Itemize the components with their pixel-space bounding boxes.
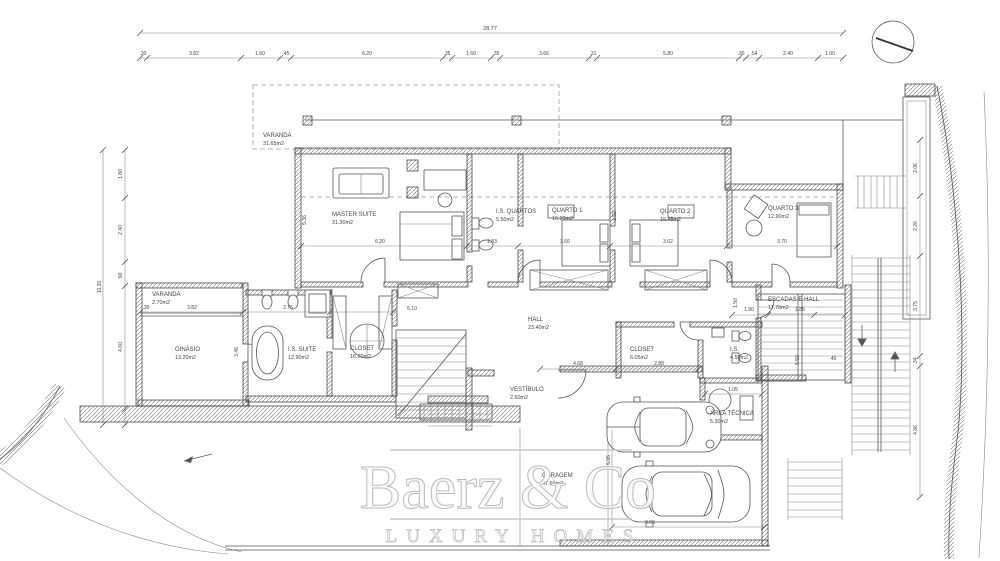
svg-text:4.68: 4.68 <box>573 361 583 367</box>
svg-text:2.70m2: 2.70m2 <box>152 300 170 306</box>
compass-needle <box>876 38 913 51</box>
room-escadas-hall: ESCADAS E HALL <box>768 297 820 303</box>
svg-text:2.88: 2.88 <box>654 361 664 367</box>
svg-text:12.90m2: 12.90m2 <box>768 214 789 220</box>
room-varanda-top: VARANDA <box>263 133 292 139</box>
svg-text:.34: .34 <box>913 357 919 364</box>
room-quarto-1: QUARTO 1 <box>552 208 583 214</box>
svg-text:3.66: 3.66 <box>539 51 549 57</box>
svg-text:.35: .35 <box>444 51 451 57</box>
svg-text:11.70m2: 11.70m2 <box>768 305 789 311</box>
car-sports <box>607 397 721 457</box>
svg-text:1.50: 1.50 <box>733 298 739 308</box>
dimension-chain-left: 10.30 1.80 2.40 .90 4.60 <box>97 147 128 428</box>
is-suite-fixtures <box>252 290 330 380</box>
svg-text:2.40: 2.40 <box>118 225 124 235</box>
floor-plan-drawing: 28.77 .30 3.82 1.60 .45 6.20 .35 1.60 .3… <box>0 0 1000 561</box>
room-ginasio: GINÁSIO <box>175 346 200 353</box>
dim-overall-top: 28.77 <box>483 26 497 32</box>
svg-text:1.05: 1.05 <box>728 387 738 393</box>
room-hall: HALL <box>528 317 544 323</box>
svg-text:5.10: 5.10 <box>407 306 417 312</box>
floor-plan-sheet: 28.77 .30 3.82 1.60 .45 6.20 .35 1.60 .3… <box>0 0 1000 561</box>
svg-text:31.30m2: 31.30m2 <box>332 220 353 226</box>
svg-text:1.52: 1.52 <box>612 211 618 221</box>
svg-text:1.83: 1.83 <box>487 239 497 245</box>
svg-text:31.65m2: 31.65m2 <box>263 141 284 147</box>
outdoor-stair-bottom-right <box>788 458 842 520</box>
room-closet-left: CLOSET <box>350 346 374 352</box>
svg-text:5.80: 5.80 <box>663 51 673 57</box>
svg-text:2.75: 2.75 <box>283 305 293 311</box>
svg-text:13.20m2: 13.20m2 <box>175 355 196 361</box>
driveway-arrow <box>184 456 193 463</box>
svg-text:1.85: 1.85 <box>795 307 805 313</box>
room-quarto-2: QUARTO 2 <box>660 209 691 215</box>
room-vestibulo: VESTÍBULO <box>510 386 544 393</box>
room-varanda-left: VARANDA <box>152 292 181 298</box>
svg-text:23.40m2: 23.40m2 <box>528 325 549 331</box>
svg-text:.90: .90 <box>118 272 124 279</box>
north-indicator <box>872 21 914 63</box>
room-is-suite: I.S. SUITE <box>288 347 316 353</box>
master-suite-furniture <box>333 160 466 260</box>
svg-text:5.50m2: 5.50m2 <box>496 217 514 223</box>
dim-overall-left: 10.30 <box>97 281 103 294</box>
svg-text:5.50: 5.50 <box>795 355 801 365</box>
watermark: Baerz & Co LUXURY HOMES <box>360 450 656 547</box>
svg-text:3.82: 3.82 <box>189 51 199 57</box>
room-quarto-3: QUARTO 3 <box>768 206 799 212</box>
svg-text:3.75: 3.75 <box>913 301 919 311</box>
svg-text:2.40: 2.40 <box>783 51 793 57</box>
svg-text:3.46: 3.46 <box>234 347 240 357</box>
svg-text:.30: .30 <box>738 51 745 57</box>
svg-text:2.06: 2.06 <box>913 163 919 173</box>
svg-text:2.26: 2.26 <box>913 221 919 231</box>
room-is-quartos: I.S. QUARTOS <box>496 209 536 215</box>
bed <box>797 203 831 257</box>
threshold <box>468 370 494 376</box>
svg-text:5.30m2: 5.30m2 <box>710 419 728 425</box>
svg-text:6.05m2: 6.05m2 <box>630 355 648 361</box>
svg-text:4.60: 4.60 <box>118 342 124 352</box>
svg-text:.35: .35 <box>493 51 500 57</box>
outdoor-stair-right <box>852 255 910 455</box>
svg-text:.30: .30 <box>143 305 150 311</box>
terrace-stair-top-right <box>855 176 906 208</box>
svg-text:1.60: 1.60 <box>255 51 265 57</box>
svg-text:5.36: 5.36 <box>302 215 308 225</box>
svg-text:.40: .40 <box>830 356 837 362</box>
watermark-subtitle: LUXURY HOMES <box>386 526 643 547</box>
svg-text:.45: .45 <box>283 51 290 57</box>
level-arrows <box>858 325 899 372</box>
svg-text:1.60: 1.60 <box>466 51 476 57</box>
svg-text:3.62: 3.62 <box>663 239 673 245</box>
quarto1-furniture <box>548 205 610 266</box>
svg-text:16.20m2: 16.20m2 <box>350 354 371 360</box>
watermark-title: Baerz & Co <box>360 454 656 522</box>
svg-text:16.45m2: 16.45m2 <box>660 217 681 223</box>
svg-text:.54: .54 <box>751 51 758 57</box>
svg-text:4.50m2: 4.50m2 <box>730 355 748 361</box>
room-is-right: I.S. <box>730 347 739 353</box>
svg-text:6.20: 6.20 <box>375 239 385 245</box>
dimension-chain-right: 2.06 2.26 3.75 .34 4.86 <box>913 137 923 500</box>
room-master-suite: MASTER SUITE <box>332 212 376 218</box>
svg-text:12.90m2: 12.90m2 <box>288 355 309 361</box>
compass-circle <box>872 21 914 63</box>
svg-text:1.80: 1.80 <box>118 169 124 179</box>
svg-text:1.00: 1.00 <box>825 51 835 57</box>
svg-text:.31: .31 <box>590 51 597 57</box>
svg-text:3.66: 3.66 <box>560 239 570 245</box>
svg-text:6.20: 6.20 <box>362 51 372 57</box>
svg-text:16.20m2: 16.20m2 <box>552 216 573 222</box>
closet-fixtures <box>350 324 384 358</box>
svg-text:.30: .30 <box>140 51 147 57</box>
dimension-chain-top: 28.77 .30 3.82 1.60 .45 6.20 .35 1.60 .3… <box>137 26 846 61</box>
svg-text:3.82: 3.82 <box>187 305 197 311</box>
room-closet-right: CLOSET <box>630 347 654 353</box>
svg-text:1.80: 1.80 <box>744 307 754 313</box>
quarto3-furniture <box>744 195 831 257</box>
svg-text:2.60m2: 2.60m2 <box>510 395 528 401</box>
room-area-tecnica: ÁREA TÉCNICA <box>710 410 754 417</box>
svg-text:3.70: 3.70 <box>777 239 787 245</box>
svg-text:4.86: 4.86 <box>913 425 919 435</box>
